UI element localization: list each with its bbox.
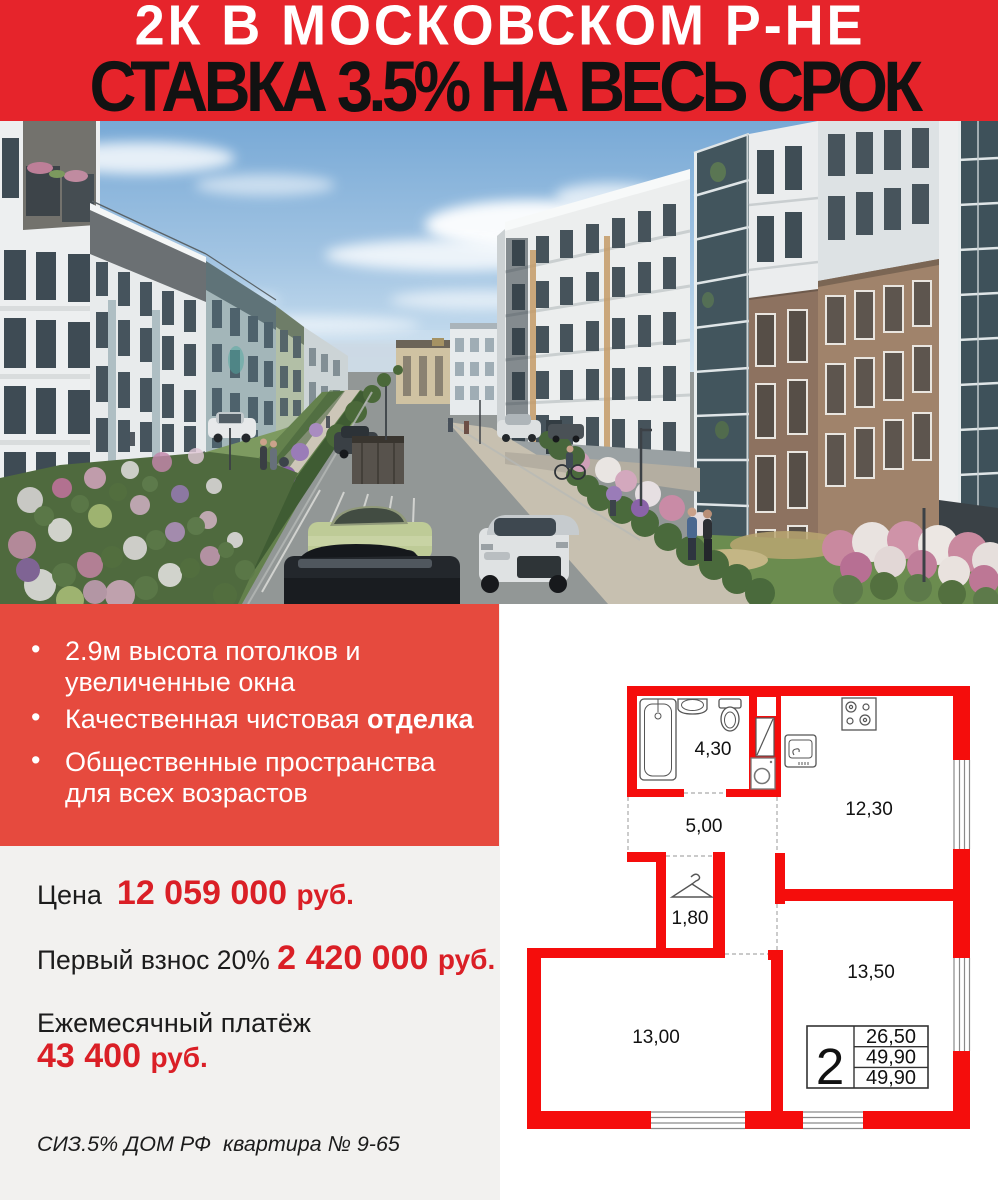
- svg-text:13,00: 13,00: [632, 1027, 680, 1048]
- svg-text:13,50: 13,50: [847, 962, 895, 983]
- svg-text:2: 2: [816, 1038, 844, 1095]
- svg-text:4,30: 4,30: [695, 739, 732, 760]
- svg-text:49,90: 49,90: [866, 1047, 916, 1069]
- svg-text:5,00: 5,00: [686, 816, 723, 837]
- svg-text:1,80: 1,80: [672, 908, 709, 929]
- svg-text:26,50: 26,50: [866, 1026, 916, 1048]
- svg-text:12,30: 12,30: [845, 799, 893, 820]
- svg-text:49,90: 49,90: [866, 1067, 916, 1089]
